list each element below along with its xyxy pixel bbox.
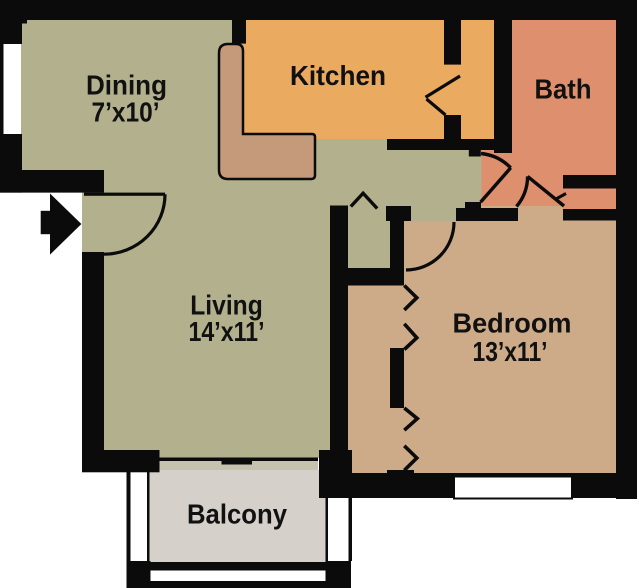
svg-text:Bath: Bath: [535, 74, 592, 105]
svg-text:14’x11’: 14’x11’: [189, 316, 265, 347]
svg-text:Balcony: Balcony: [187, 499, 287, 530]
svg-text:Kitchen: Kitchen: [290, 60, 386, 91]
svg-text:7’x10’: 7’x10’: [92, 97, 160, 128]
svg-text:13’x11’: 13’x11’: [473, 336, 548, 367]
svg-text:Bedroom: Bedroom: [453, 308, 572, 339]
